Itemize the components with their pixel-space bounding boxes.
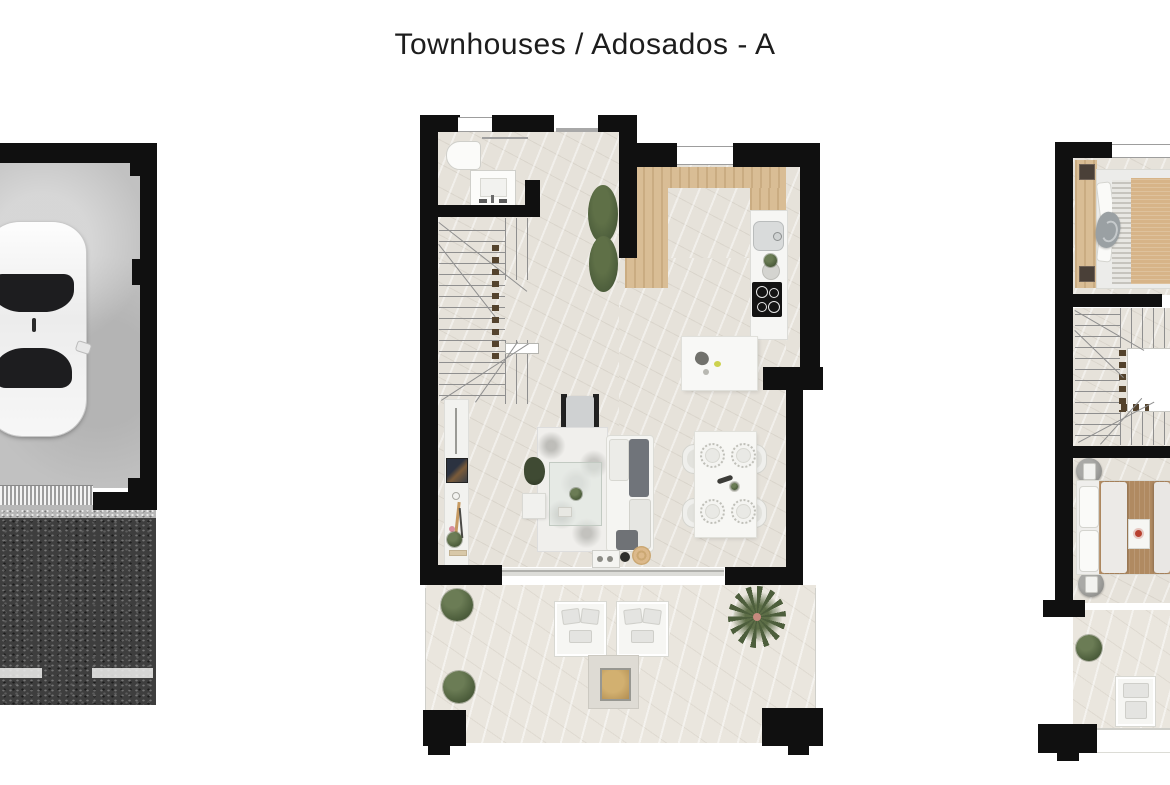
upper-wall-left-foot [1043,600,1085,617]
hedge-plant [588,185,618,243]
burner-icon [768,301,780,313]
wall-corner-br [725,567,803,585]
wood-counter-top [625,167,786,188]
bed2-pillow [1079,486,1099,528]
terrace-pillar-br-foot [788,746,809,755]
upper-staircase [1075,308,1170,445]
palm-plant [728,586,786,648]
wall-left [420,115,438,570]
sun-lounger [555,602,606,656]
wall-top-a [420,115,460,132]
lounger-back-cushion [642,608,662,625]
upper-wall-bottom [1038,724,1097,753]
wall-bedroom1-stairs [1073,294,1162,307]
stair-treads-top-right [505,218,537,280]
plate [700,499,725,524]
coffee-table [549,462,602,526]
stair-balusters [492,245,499,363]
wood-counter-right [750,188,786,210]
plate-inner [705,448,720,463]
tv-art [446,458,468,483]
centerpiece-plant [731,483,738,490]
plant-stool [524,457,545,485]
sideboard-handle [455,408,457,454]
terrace-bush [441,589,473,621]
decor-bowl-dark [620,552,630,562]
plate [731,443,756,468]
kitchen-sink [753,221,784,251]
wall-right-lower [786,385,803,585]
upper-floor-plan [1000,0,1170,785]
sofa-chaise-cushion [609,439,629,481]
cooktop [752,282,782,317]
wall-kitchen-top-b [733,143,803,167]
entry-door-leaf [556,128,598,132]
terrace-pillar-bl-foot [428,746,450,755]
bedroom1-window [1112,144,1170,158]
sun-lounger [617,602,668,656]
bed1-tan-blanket [1131,178,1170,284]
upper-wall-bottom-foot [1057,753,1079,761]
toilet [446,141,481,170]
faucet-icon [491,195,494,203]
balcony-lounger [1116,677,1155,726]
headboard-cabinet [1079,164,1095,180]
palm-center [753,613,761,621]
candle-icon [607,556,613,562]
vanity-handle [499,199,507,203]
dining-table [695,432,756,537]
table-book [558,507,572,517]
nightstand [1078,571,1104,597]
wall-bathroom [437,205,540,217]
terrace-pillar-br [762,708,823,746]
vanity-sink [470,170,516,209]
plate-inner [736,504,751,519]
plate-inner [705,504,720,519]
lounger-back-cushion [561,608,581,625]
lounger-seat-cushion [1125,701,1147,719]
table-centerpiece [729,481,740,492]
burner-icon [757,302,767,312]
upper-stair-balusters [1119,350,1126,412]
lounger-back-cushion [623,608,643,625]
wall-bathroom-stub [525,180,540,205]
terrace-pillar-bl [423,710,466,746]
bed2-pillow [1079,530,1099,572]
fire-pit-bowl [600,668,631,701]
island-decor-yellow [714,361,721,367]
fire-pit [589,656,638,708]
decor-item [452,492,460,500]
towel-rail [482,137,528,139]
lamp-icon [1085,576,1098,593]
lounger-back-cushion [580,608,600,625]
island-decor-gray [703,369,709,375]
balcony-bush [1076,635,1102,661]
terrace-bush [443,671,475,703]
bed2-tray [1128,519,1150,549]
sliding-glass-door [502,568,724,576]
upper-wall-left [1055,142,1073,610]
wall-stairs-bedroom2 [1060,446,1170,458]
hedge-plant [589,236,618,292]
wall-top-b [492,115,554,132]
side-cube-table [523,494,545,518]
bed2-duvet-fold [1101,482,1127,573]
tray-set [592,550,620,568]
wall-kitchen-top-a [637,143,677,167]
lounger-seat-cushion [569,630,592,643]
counter-plant [764,254,777,267]
wall-corner-bl [420,565,502,585]
kitchen-island [682,337,757,390]
plate-inner [736,448,751,463]
lounger-back-cushion [1123,683,1149,698]
sideboard-tray [449,550,467,556]
ground-floor-plan [0,0,1170,785]
floorplan-canvas: Townhouses / Adosados - A [0,0,1170,785]
sofa-back-cushion [629,439,649,497]
pouf-tan [632,546,651,565]
throw-fold [1099,219,1120,244]
plate [731,499,756,524]
table-plant [570,488,582,500]
wall-right-upper [800,143,820,373]
lamp-icon [1083,463,1096,480]
headboard-cabinet [1079,266,1095,282]
wall-entry-vertical [619,128,637,258]
terrace-rail-left [420,588,426,710]
rose-icon [1135,530,1142,537]
bathroom-window [458,117,492,132]
vanity-handle [479,199,487,203]
sideboard [445,400,468,568]
balcony-edge [1097,728,1170,753]
plate [700,443,725,468]
lounger-seat-cushion [631,630,654,643]
kitchen-window [677,146,733,165]
terrace-rail-right [815,588,821,710]
bed2-duvet-fold [1154,482,1170,573]
stair-void [1127,348,1170,412]
sideboard-plant [447,532,462,547]
candle-icon [597,556,603,562]
island-decor-dark [693,350,711,367]
staircase [439,218,537,404]
faucet-icon [773,232,782,241]
upper-stair-treads-bottom [1120,412,1170,445]
burner-icon [756,286,768,298]
burner-icon [769,288,779,298]
